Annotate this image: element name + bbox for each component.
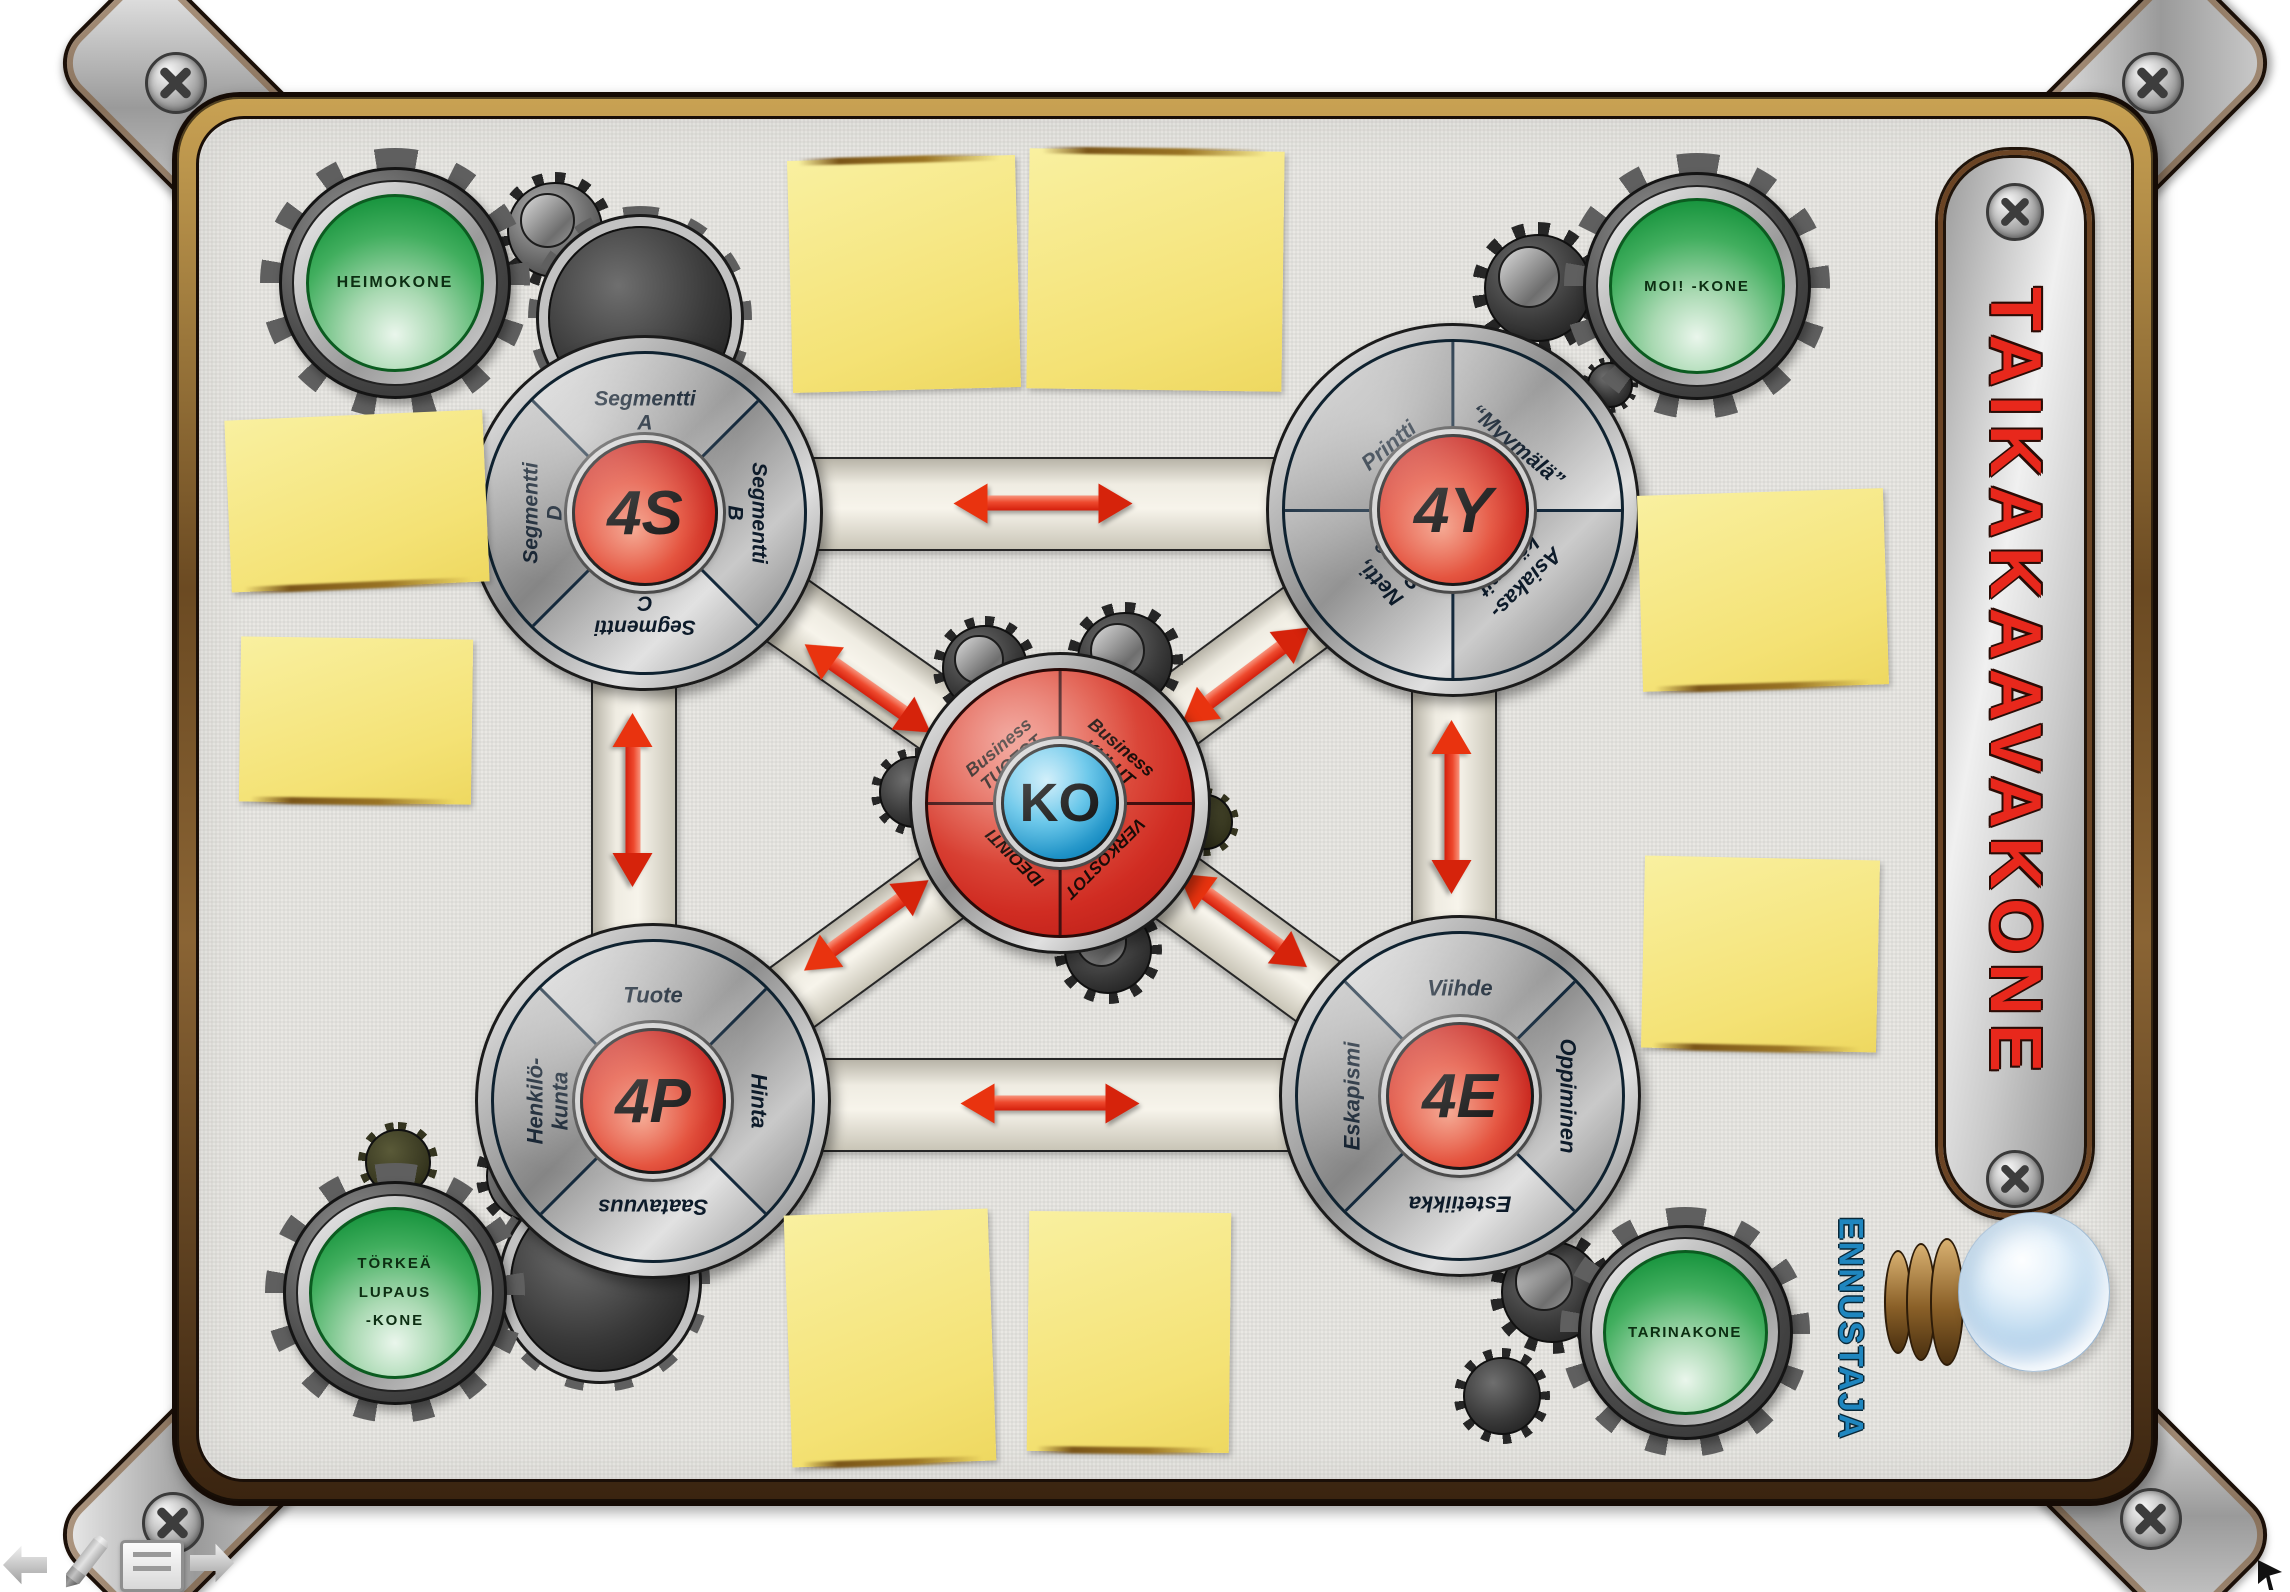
divider bbox=[925, 802, 1195, 805]
wheel-4s-hub: 4S bbox=[572, 440, 718, 586]
machine-torkea-lupaus-kone: TÖRKEÄ LUPAUS -KONE bbox=[265, 1163, 525, 1423]
sticky-note[interactable] bbox=[787, 155, 1021, 393]
sticky-note[interactable] bbox=[1641, 856, 1880, 1053]
divider bbox=[1326, 962, 1594, 1230]
wheel-ko-segment-ideointi: IDEOINTI bbox=[982, 826, 1048, 892]
exchange-arrow-left bbox=[626, 745, 641, 855]
wheel-4p-segment-henkilokunta: Henkilö- kunta bbox=[523, 1058, 572, 1145]
sticky-note[interactable] bbox=[784, 1209, 997, 1468]
wheel-4e-hub: 4E bbox=[1386, 1022, 1534, 1170]
machine-moikone-label: MOI! -KONE bbox=[1644, 278, 1750, 295]
mouse-cursor-icon bbox=[2258, 1560, 2282, 1590]
predictor-text: ENNUSTAJA bbox=[1831, 1217, 1870, 1440]
wheel-4s-segment-d: Segmentti D bbox=[520, 462, 567, 564]
predictor-label: ENNUSTAJA bbox=[1822, 1226, 1878, 1432]
exchange-arrow-right bbox=[1445, 752, 1460, 862]
gear-icon bbox=[1454, 1348, 1550, 1444]
machine-tarinakone-label: TARINAKONE bbox=[1628, 1324, 1742, 1341]
divider bbox=[514, 382, 777, 645]
divider bbox=[514, 382, 777, 645]
crystal-ball-icon bbox=[1958, 1212, 2110, 1372]
plate-screw-icon bbox=[1986, 183, 2044, 241]
page-title: TAIKAKAAVAKONE bbox=[1974, 287, 2056, 1081]
wheel-4e-segment-estetiikka: Estetiikka bbox=[1409, 1191, 1512, 1216]
wheel-4s-segment-c: Segmentti C bbox=[594, 591, 696, 638]
divider bbox=[522, 970, 785, 1233]
title-plate: TAIKAKAAVAKONE bbox=[1938, 150, 2092, 1218]
wheel-ko-segment-kulut: Business KULUT bbox=[1072, 714, 1159, 796]
divider bbox=[1326, 962, 1594, 1230]
divider bbox=[1059, 668, 1062, 938]
plate-screw-icon bbox=[1986, 1150, 2044, 1208]
sticky-note[interactable] bbox=[1026, 148, 1284, 392]
wheel-4p: Tuote Hinta Saatavuus Henkilö- kunta 4P bbox=[475, 923, 831, 1279]
wheel-4y-segment-printti: Printti bbox=[1357, 416, 1422, 476]
wheel-ko: Business TUOTOT Business KULUT IDEOINTI … bbox=[909, 652, 1211, 954]
wheel-4s-segment-a: Segmentti A bbox=[594, 388, 696, 435]
wheel-4s-segment-b: Segmentti B bbox=[723, 462, 770, 564]
sticky-note[interactable] bbox=[1027, 1211, 1232, 1453]
wheel-4e-segment-viihde: Viihde bbox=[1427, 977, 1492, 1002]
corner-screw-icon bbox=[2122, 52, 2184, 114]
sticky-note[interactable] bbox=[239, 636, 473, 804]
wheel-4y-segment-myymala: “Myymälä” bbox=[1465, 400, 1569, 493]
wheel-4y-hub: 4Y bbox=[1377, 434, 1529, 586]
machine-moikone: MOI! -KONE bbox=[1564, 153, 1830, 419]
exchange-arrow-top bbox=[986, 496, 1101, 511]
divider bbox=[522, 970, 785, 1233]
sticky-note[interactable] bbox=[224, 409, 489, 592]
wheel-4y-segment-asiakaskaynnit: Asiakas- käynnit bbox=[1467, 524, 1566, 623]
corner-screw-icon bbox=[2120, 1488, 2182, 1550]
wheel-4p-hub: 4P bbox=[580, 1028, 726, 1174]
divider bbox=[1282, 509, 1624, 512]
wheel-4e-segment-eskapismi: Eskapismi bbox=[1341, 1042, 1366, 1151]
corner-screw-icon bbox=[145, 52, 207, 114]
machine-heimokone: HEIMOKONE bbox=[260, 148, 530, 418]
wheel-4p-segment-hinta: Hinta bbox=[746, 1074, 771, 1129]
notes-page-icon[interactable] bbox=[120, 1540, 184, 1592]
wheel-ko-segment-verkostot: VERKOSTOT bbox=[1061, 814, 1149, 902]
machine-torkea-label: TÖRKEÄ LUPAUS -KONE bbox=[357, 1250, 432, 1336]
wheel-4e-segment-oppiminen: Oppiminen bbox=[1555, 1039, 1580, 1154]
wheel-4y-segment-netti-some: Netti, Some bbox=[1351, 535, 1428, 612]
wheel-4p-segment-saatavuus: Saatavuus bbox=[598, 1194, 708, 1219]
wheel-4p-segment-tuote: Tuote bbox=[623, 984, 682, 1009]
back-arrow-icon[interactable] bbox=[3, 1545, 47, 1585]
divider bbox=[1452, 339, 1455, 681]
sticky-note[interactable] bbox=[1637, 488, 1889, 692]
machine-heimokone-label: HEIMOKONE bbox=[337, 274, 454, 292]
wheel-ko-segment-tuotot: Business TUOTOT bbox=[961, 714, 1048, 796]
machine-tarinakone: TARINAKONE bbox=[1560, 1207, 1810, 1457]
wheel-ko-hub: KO bbox=[1001, 744, 1119, 862]
exchange-arrow-bottom bbox=[993, 1096, 1108, 1111]
